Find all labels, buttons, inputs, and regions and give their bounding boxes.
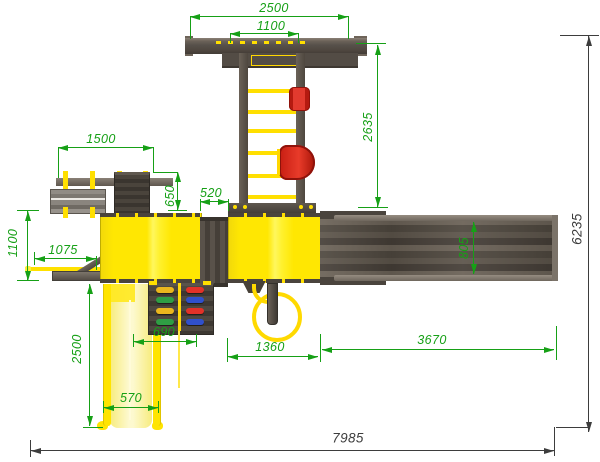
dim-ext	[133, 334, 134, 347]
dim-label-overall-width: 7985	[332, 431, 364, 445]
dim-ext	[30, 440, 31, 457]
arrow-left-icon	[228, 354, 238, 360]
swing-frame-outline	[251, 55, 299, 66]
bolt-dot	[233, 205, 237, 209]
dim-ext	[554, 427, 555, 456]
dim-ext	[556, 427, 588, 428]
dim-ext	[320, 334, 321, 362]
dim-label-climbing-wall-width: 690	[153, 326, 175, 339]
dim-ext	[228, 199, 229, 211]
dim-line	[58, 147, 153, 148]
dim-ext	[190, 16, 191, 39]
dim-ext	[227, 338, 228, 362]
dim-label-top-width: 2500	[259, 2, 288, 15]
dim-label-walkway-width: 805	[458, 237, 471, 259]
arrow-left-icon	[35, 256, 45, 262]
arrow-up-icon	[175, 172, 181, 182]
bench-post	[90, 207, 95, 218]
dim-ext	[230, 33, 231, 43]
dim-ext	[158, 401, 159, 413]
dim-line	[588, 36, 589, 432]
bolt-dot	[299, 205, 303, 209]
dim-ext	[153, 147, 154, 173]
arrow-up-icon	[471, 222, 477, 232]
swing-rail-left	[239, 53, 248, 211]
baby-swing-seat	[279, 145, 315, 180]
arrow-down-icon	[471, 264, 477, 274]
arrow-right-icon	[143, 145, 153, 151]
dim-label-overall-depth: 6235	[570, 213, 584, 245]
arrow-up-icon	[586, 36, 592, 46]
arrow-left-icon	[230, 31, 240, 37]
bench-post	[63, 171, 68, 191]
bolt-dot	[309, 205, 313, 209]
arrow-up-icon	[375, 45, 381, 55]
arrow-left-icon	[200, 199, 210, 205]
arrow-right-icon	[308, 354, 318, 360]
bridge-deck	[200, 217, 228, 287]
tower-right-top-edge	[228, 213, 320, 217]
arrow-right-icon	[544, 448, 554, 454]
tower-roof-left	[100, 213, 202, 283]
arrow-left-icon	[31, 448, 41, 454]
dim-label-left-offset: 1100	[7, 229, 20, 257]
dim-line	[190, 16, 348, 17]
entry-steps	[114, 172, 150, 218]
arrow-right-icon	[148, 405, 158, 411]
swing-seat	[289, 87, 310, 111]
arrow-up-icon	[87, 284, 93, 294]
arrow-left-icon	[58, 145, 68, 151]
swing-bottom-bar	[228, 203, 316, 213]
walkway-end-cap	[552, 215, 558, 281]
dim-label-bridge-width: 520	[200, 187, 222, 200]
dim-ext	[560, 35, 599, 36]
dim-ext	[358, 207, 388, 208]
baby-swing-seat-frame	[277, 149, 280, 175]
dim-label-pole-offset: 1360	[255, 341, 284, 354]
tower-roof-right	[228, 213, 322, 283]
dim-ext	[17, 280, 39, 281]
fireman-pole	[267, 283, 278, 325]
climbing-hold-blue	[186, 319, 204, 325]
dim-line	[31, 450, 554, 451]
climbing-hold-yellow	[156, 287, 174, 293]
arrow-down-icon	[375, 197, 381, 207]
walkway-rail-bottom	[334, 275, 558, 281]
bolt-dot	[243, 205, 247, 209]
dim-ext	[153, 172, 177, 173]
tower-left-top-edge	[100, 213, 200, 217]
wall-fixing	[149, 281, 157, 285]
dim-ext	[168, 210, 187, 211]
walkway-deck	[320, 219, 558, 277]
climbing-hold-blue	[186, 297, 204, 303]
arrow-left-icon	[322, 347, 332, 353]
arrow-left-icon	[190, 14, 200, 20]
dim-label-slide-width: 570	[120, 392, 142, 405]
arrow-right-icon	[218, 199, 228, 205]
wall-center-rail	[178, 283, 181, 331]
climbing-hold-green	[156, 297, 174, 303]
dim-ext	[556, 326, 557, 360]
dim-label-walkway-length: 3670	[417, 334, 446, 347]
bench-post	[90, 171, 95, 191]
playground-plan-drawing: 2500 1100 2635 1500 650 520 1100 1075 25…	[0, 0, 600, 462]
arrow-right-icon	[186, 339, 196, 345]
dim-line	[322, 349, 554, 350]
arrow-down-icon	[87, 416, 93, 426]
dim-label-ramp-length: 1075	[48, 244, 77, 257]
arrow-right-icon	[288, 31, 298, 37]
dim-label-bench-width: 1500	[86, 133, 115, 146]
bench-post	[63, 207, 68, 218]
dim-label-top-inner-width: 1100	[257, 20, 285, 33]
dim-ext	[196, 334, 197, 347]
dim-ext	[298, 33, 299, 43]
dim-ext	[348, 16, 349, 39]
dim-ext	[200, 199, 201, 211]
dim-label-swing-depth: 2635	[362, 112, 375, 141]
swing-rail-right	[296, 53, 305, 211]
dim-ext	[103, 401, 104, 413]
dim-line	[89, 284, 90, 426]
climbing-hold-red	[186, 287, 204, 293]
dim-ext	[17, 210, 39, 211]
dim-line	[377, 45, 378, 207]
picnic-table-top	[50, 189, 106, 214]
arrow-left-icon	[134, 339, 144, 345]
arrow-up-icon	[25, 211, 31, 221]
arrow-right-icon	[338, 14, 348, 20]
dim-label-slide-length: 2500	[71, 334, 84, 363]
arrow-right-icon	[86, 256, 96, 262]
wall-fixing	[203, 281, 211, 285]
dim-ext	[83, 427, 103, 428]
dim-ext	[34, 252, 35, 265]
arrow-right-icon	[544, 347, 554, 353]
climbing-hold-red	[186, 308, 204, 314]
arrow-down-icon	[175, 200, 181, 210]
dim-line	[228, 356, 318, 357]
dim-ext	[58, 147, 59, 178]
arrow-left-icon	[104, 405, 114, 411]
dim-ext	[96, 256, 97, 270]
dim-ext	[356, 43, 386, 44]
wall-center-rail-extension	[178, 331, 180, 388]
walkway-rail-top	[334, 215, 558, 221]
climbing-hold-yellow	[156, 308, 174, 314]
